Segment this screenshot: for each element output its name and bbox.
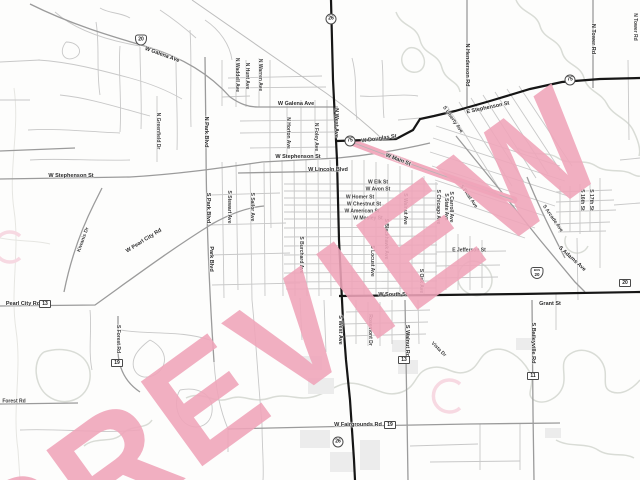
highway-roads	[331, 0, 640, 480]
map-canvas[interactable]: W Galena AveW Galena AveW Stephenson StW…	[0, 0, 640, 480]
boundary-lines	[0, 88, 50, 480]
building-footprints	[300, 338, 561, 472]
road-network	[0, 0, 640, 480]
railroad-line	[192, 0, 380, 137]
faint-watermark-arcs	[0, 232, 460, 412]
arterial-roads	[0, 0, 593, 480]
